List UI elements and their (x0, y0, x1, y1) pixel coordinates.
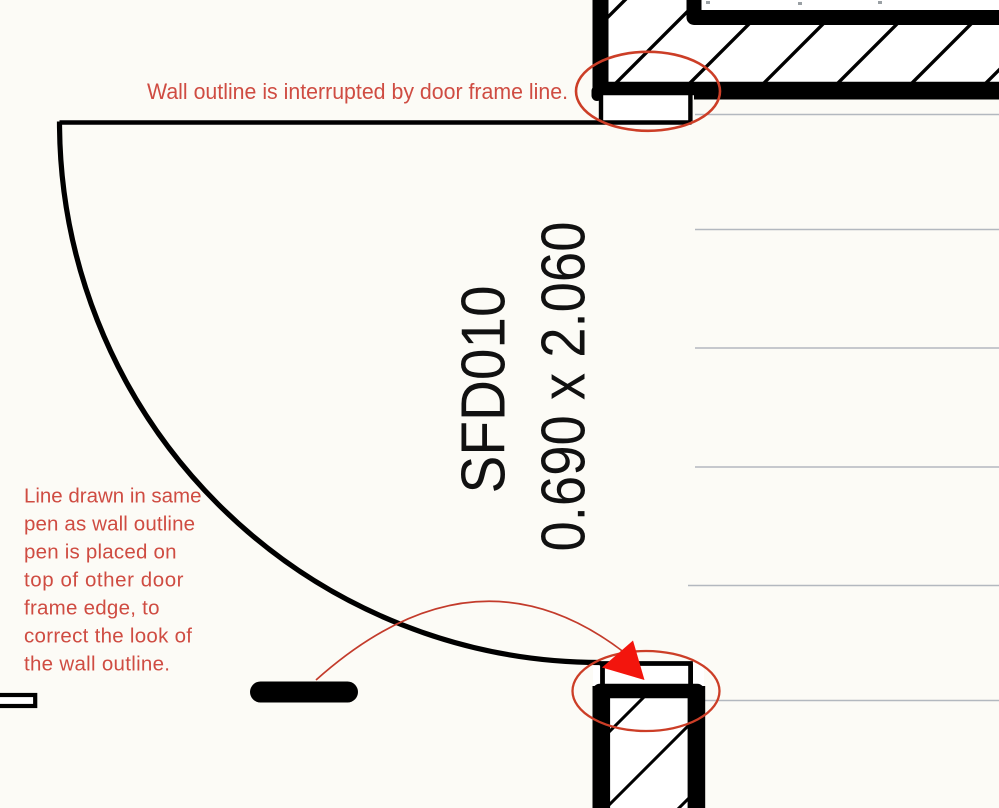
svg-text:frame edge, to: frame edge, to (24, 597, 160, 620)
svg-text:pen is placed on: pen is placed on (24, 541, 177, 564)
svg-text:correct the look of: correct the look of (24, 625, 192, 648)
svg-text:SFD010: SFD010 (450, 286, 519, 494)
svg-text:the wall outline.: the wall outline. (24, 653, 170, 676)
svg-text:top of other door: top of other door (24, 569, 184, 592)
svg-text:Line drawn in same: Line drawn in same (24, 485, 202, 508)
svg-text:0.690 x 2.060: 0.690 x 2.060 (530, 222, 599, 552)
svg-text:Wall outline is interrupted by: Wall outline is interrupted by door fram… (147, 79, 568, 104)
svg-text:pen as wall outline: pen as wall outline (24, 513, 195, 536)
